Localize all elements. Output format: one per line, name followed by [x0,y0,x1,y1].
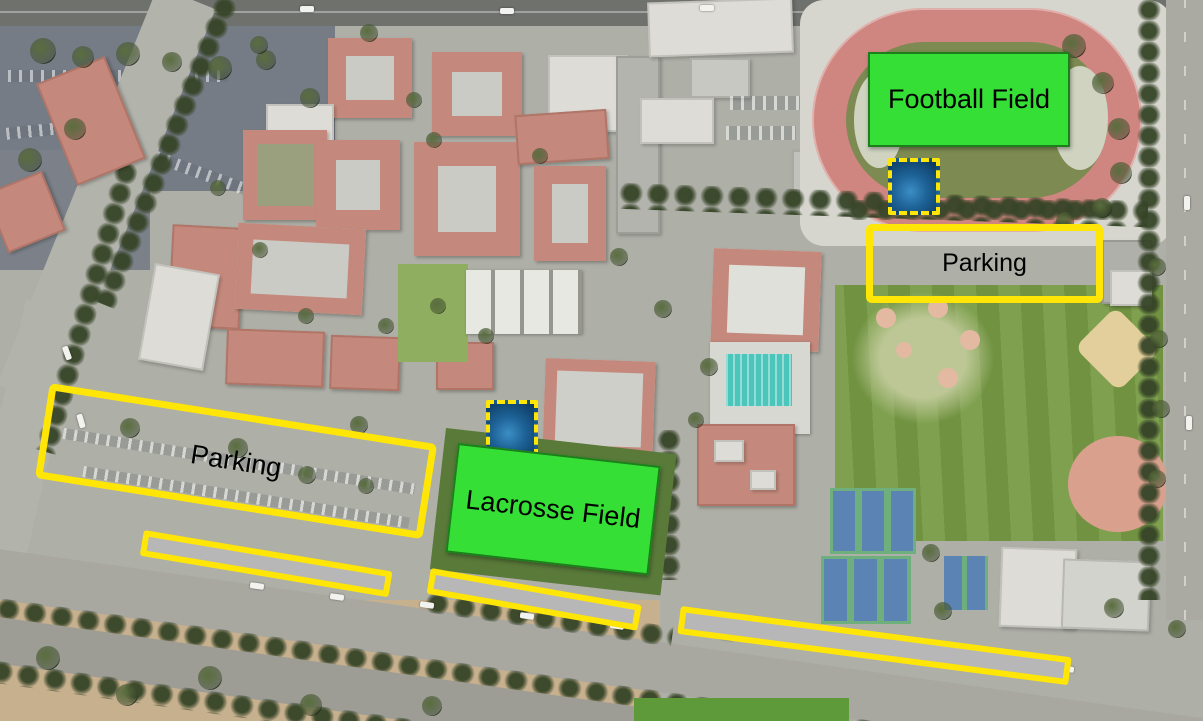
tree [298,308,314,324]
building [225,328,325,387]
tree [654,300,672,318]
base-patch [896,342,912,358]
building [690,58,750,98]
tennis-courts-north [830,488,916,554]
tree [72,46,94,68]
parking-north-zone: Parking [866,224,1103,303]
road-east [1166,0,1203,620]
building [647,0,794,58]
lacrosse-field-zone: Lacrosse Field [446,443,661,575]
tree [610,248,628,266]
tree [426,132,442,148]
tree [532,148,548,164]
football-field-label: Football Field [888,84,1050,115]
truck-row [730,96,800,110]
building [414,142,520,256]
building-courtyard [243,130,327,220]
tree [1148,470,1166,488]
tree-row [1136,0,1164,600]
truck-row [726,126,796,140]
tennis-courts-south [821,556,911,624]
lacrosse-field-label: Lacrosse Field [464,484,642,535]
building [329,335,401,391]
car [1186,416,1192,430]
tennis-courts-east [944,556,988,610]
tree [922,544,940,562]
tree [700,358,718,376]
swimming-pool [726,354,792,406]
tree [1092,72,1114,94]
car [700,5,714,11]
tree [360,24,378,42]
building [234,223,366,316]
car [1184,196,1190,210]
tree [1092,198,1112,218]
parking-west-label: Parking [188,439,283,484]
tree [36,646,60,670]
tree [116,684,138,706]
building [432,52,522,136]
greenhouse-grid [466,270,582,334]
tree-row [846,200,1116,220]
building [328,38,412,118]
tree [406,92,422,108]
building [750,470,776,490]
tree [64,118,86,140]
building [138,263,220,371]
tree [162,52,182,72]
tree [1150,330,1168,348]
parking-north-label: Parking [942,249,1027,278]
building [640,98,714,144]
tree [30,38,56,64]
football-field-zone: Football Field [868,52,1070,147]
tree [1108,118,1130,140]
car [300,6,314,12]
building [697,424,795,506]
tree [300,88,320,108]
base-patch [876,308,896,328]
base-patch [938,368,958,388]
tree [18,148,42,172]
building-gym [710,248,821,352]
tree [430,298,446,314]
lawn [398,264,468,362]
tree [422,696,442,716]
tree [198,666,222,690]
tree [1148,258,1166,276]
tree [688,412,704,428]
tree [934,602,952,620]
building [714,440,744,462]
tree [1168,620,1186,638]
tree [300,694,322,716]
building [534,166,606,261]
tree [210,180,226,196]
baseball-infield [852,292,994,424]
building [514,109,609,165]
tree [1152,400,1170,418]
tree [478,328,494,344]
blue-marker-track-entrance [888,158,940,215]
tree [252,242,268,258]
tree [1110,162,1132,184]
tree [378,318,394,334]
tree [116,42,140,66]
grass-strip-south [634,698,849,721]
base-patch [960,330,980,350]
tree [208,56,232,80]
campus-aerial-map: Football Field Parking Parking Lacrosse … [0,0,1203,721]
tree [1104,598,1124,618]
tree [250,36,268,54]
building [316,140,400,230]
car [500,8,514,14]
